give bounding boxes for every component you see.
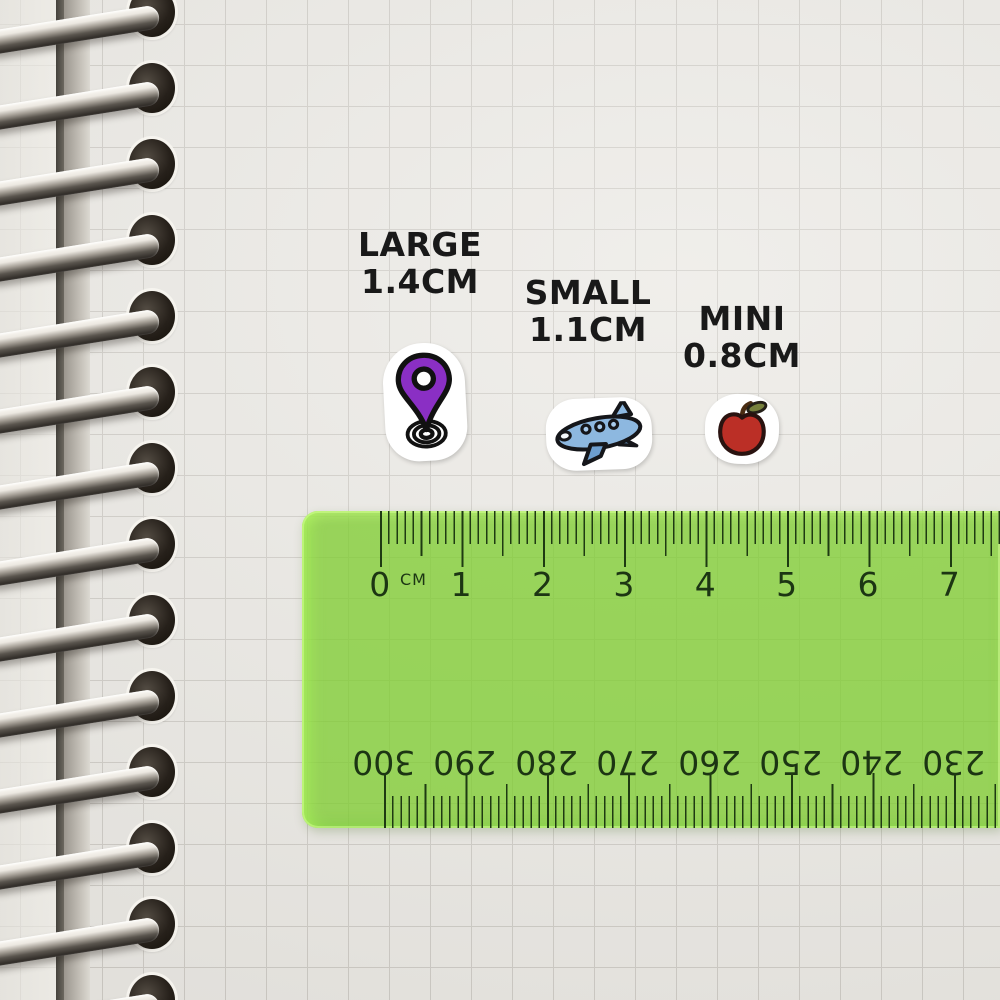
location-pin-sticker [381, 341, 469, 463]
airplane-icon [550, 400, 648, 467]
apple-sticker [704, 393, 779, 464]
mini-size: 0.8CM [662, 337, 822, 374]
cm-label-7: 7 [909, 565, 990, 604]
mini-name: MINI [662, 300, 822, 337]
large-name: LARGE [330, 226, 510, 263]
cm-label-1: 1 [420, 565, 501, 604]
mini-label: MINI 0.8CM [662, 300, 822, 374]
small-name: SMALL [498, 274, 678, 311]
large-label: LARGE 1.4CM [330, 226, 510, 300]
ruler-unit-label: CM [400, 570, 427, 589]
cm-label-2: 2 [502, 565, 583, 604]
apple-icon [710, 398, 773, 459]
cm-label-3: 3 [583, 565, 664, 604]
ruler-cm-major-ticks [380, 511, 1000, 567]
cm-label-6: 6 [827, 565, 908, 604]
notebook-photo: LARGE 1.4CM SMALL 1.1CM MINI 0.8CM [0, 0, 1000, 1000]
airplane-sticker [545, 396, 653, 472]
ruler: 0 1 2 3 4 5 6 7 CM 300 290 280 270 260 2… [302, 511, 1000, 828]
cm-label-4: 4 [665, 565, 746, 604]
ruler-mm-major-ticks [384, 773, 1000, 828]
spine-edge [64, 0, 90, 1000]
large-size: 1.4CM [330, 263, 510, 300]
small-label: SMALL 1.1CM [498, 274, 678, 348]
location-pin-icon [388, 348, 461, 455]
spiral-binding [0, 0, 200, 1000]
small-size: 1.1CM [498, 311, 678, 348]
cm-label-5: 5 [746, 565, 827, 604]
ruler-cm-scale: 0 1 2 3 4 5 6 7 [339, 565, 990, 604]
